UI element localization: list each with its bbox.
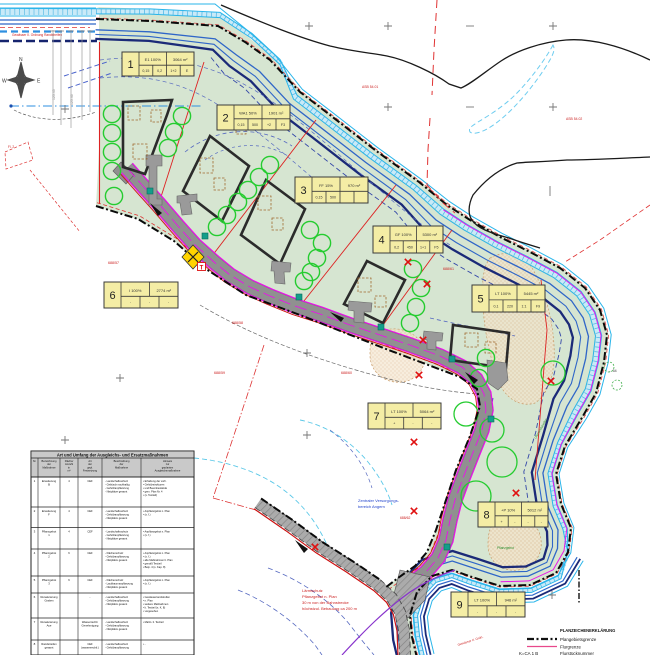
svg-text:1+2: 1+2 [170,69,176,73]
svg-text:30 m von der Bahnstrecke: 30 m von der Bahnstrecke [302,600,349,605]
svg-text:500: 500 [330,196,336,200]
svg-text:Genehmigung: Genehmigung [82,624,99,628]
svg-text:m²: m² [67,470,70,473]
svg-text:4: 4 [378,235,384,247]
svg-text:7: 7 [373,411,379,423]
svg-text:Pflanzgebot: Pflanzgebot [42,551,56,555]
svg-text:+2: +2 [267,123,271,127]
svg-text:• (s. f.): • (s. f.) [143,533,151,537]
svg-text:5445 m²: 5445 m² [524,291,539,296]
svg-text:N: N [19,57,23,63]
svg-text:450: 450 [407,245,413,249]
svg-text:- Landschaftsschutz: - Landschaftsschutz [105,642,129,646]
svg-text:688/58: 688/58 [232,321,243,325]
svg-text:LT 100%: LT 100% [391,409,407,414]
svg-text:CEF: CEF [87,551,93,555]
svg-text:- Landschaftsschutz: - Landschaftsschutz [105,479,129,483]
svg-text:- Gehölzanpflanzung: - Gehölzanpflanzung [105,599,129,603]
svg-text:Pflanzgebot: Pflanzgebot [42,530,56,534]
svg-text:- Gehölzanpflanzung: - Gehölzanpflanzung [105,533,129,537]
svg-text:Zentraler Versorgungs-: Zentraler Versorgungs- [358,498,400,503]
svg-text:CEF: CEF [87,530,93,534]
svg-text:0,2: 0,2 [394,245,399,249]
svg-text:• (s. f.): • (s. f.) [143,513,151,517]
svg-text:5: 5 [477,294,483,306]
svg-text:Pflanzgebot: Pflanzgebot [497,546,514,550]
svg-text:1: 1 [127,59,133,71]
svg-text:• Gewässerrandstreifen: • Gewässerrandstreifen [143,595,171,599]
svg-text:0,15: 0,15 [316,196,323,200]
svg-text:- Laubbaumanpflanzung: - Laubbaumanpflanzung [105,582,134,586]
svg-text:Erweiterung: Erweiterung [42,509,57,513]
svg-text:Pflanzgebot: Pflanzgebot [42,578,56,582]
svg-text:- Landschaftsschutz: - Landschaftsschutz [105,509,129,513]
svg-text:• Erhaltung der vorh.: • Erhaltung der vorh. [143,479,167,483]
svg-text:Nr.: Nr. [33,459,37,463]
svg-text:E1 100%: E1 100% [145,57,162,62]
svg-text:Maßnahme: Maßnahme [42,465,56,469]
svg-text:ASB 54.02: ASB 54.02 [566,117,582,121]
svg-text:T: T [200,266,204,272]
svg-text:• Maßn. lt. Textteil: • Maßn. lt. Textteil [143,620,164,624]
svg-text:0,15: 0,15 [142,69,149,73]
svg-text:• gemäß Textteil: • gemäß Textteil [143,562,162,566]
svg-text:1901 m²: 1901 m² [269,111,284,116]
svg-text:- Nistplätze gesamt: - Nistplätze gesamt [105,602,127,606]
svg-text:CEF: CEF [87,578,93,582]
svg-text:F9: F9 [536,304,540,308]
svg-text:höchstzul. Bebauung ca 200 m: höchstzul. Bebauung ca 200 m [302,606,358,611]
svg-text:- Nistplätze gesamt: - Nistplätze gesamt [105,627,127,631]
svg-text:GF 100%: GF 100% [395,232,412,237]
svg-text:- Gehölzanpflanzung: - Gehölzanpflanzung [105,646,129,650]
svg-text:+: + [501,520,503,524]
svg-text:688/59: 688/59 [214,371,225,375]
svg-text:- Nistplätze gesamt: - Nistplätze gesamt [105,516,127,520]
svg-text:688/60: 688/60 [341,371,352,375]
svg-text:- Nistplätze gesamt: - Nistplätze gesamt [105,537,127,541]
svg-text:123.40: 123.40 [70,94,74,105]
svg-text:1:1: 1:1 [522,304,527,308]
svg-text:F5: F5 [434,245,438,249]
svg-text:Maßnahme: Maßnahme [115,465,129,469]
svg-text:Renaturierung: Renaturierung [40,620,58,624]
svg-text:Erweiterung: Erweiterung [42,479,57,483]
svg-text:688/57: 688/57 [108,261,119,265]
svg-text:Fl. 2: Fl. 2 [8,145,14,149]
svg-text:- Nistplätze gesamt: - Nistplätze gesamt [105,558,127,562]
svg-text:CEF: CEF [87,642,93,646]
svg-text:Renaturierung: Renaturierung [40,595,58,599]
svg-text:3064 m²: 3064 m² [173,57,188,62]
svg-text:• Gehölzstrukturen: • Gehölzstrukturen [143,483,165,487]
svg-text:(wasserrechtl.): (wasserrechtl.) [81,646,99,650]
svg-text:8: 8 [483,510,489,522]
svg-text:Festsetzung: Festsetzung [83,469,98,473]
svg-text:688/62: 688/62 [400,516,410,520]
svg-text:F3: F3 [281,123,285,127]
svg-text:• n. Plan: • n. Plan [143,599,153,603]
svg-text:5300 m²: 5300 m² [422,232,437,237]
svg-text:Wasserrechtl.: Wasserrechtl. [82,620,99,624]
svg-text:• alle Maßnahmen lt. Plan: • alle Maßnahmen lt. Plan [143,558,173,562]
svg-text:946 m²: 946 m² [505,598,518,603]
svg-text:- Gebüsch nachhaltig: - Gebüsch nachhaltig [105,483,130,487]
svg-text:LT 100%: LT 100% [474,598,490,603]
svg-text:WA1 50%: WA1 50% [239,111,257,116]
svg-text:CEF: CEF [87,509,93,513]
svg-text:Graben: Graben [45,599,54,603]
svg-text:Randstreifen: Randstreifen [41,642,57,646]
svg-text:1+1: 1+1 [420,245,426,249]
svg-text:Lärmschutz: Lärmschutz [302,588,323,593]
svg-text:• Anpflanzgebot n. Plan: • Anpflanzgebot n. Plan [143,578,170,582]
svg-text:- Gehölzanpflanzung: - Gehölzanpflanzung [105,555,129,559]
svg-text:Gewässer II. Ordnung Randstrei: Gewässer II. Ordnung Randstreifen [12,33,62,37]
svg-text:+P 10%: +P 10% [501,508,515,513]
svg-text:Aue: Aue [47,624,52,628]
svg-text:- Flächenschutz: - Flächenschutz [105,578,124,582]
svg-text:6: 6 [109,290,115,302]
svg-text:- Nistplätze gesamt: - Nistplätze gesamt [105,490,127,494]
svg-text:-: - [90,596,91,599]
svg-text:• weitere Maßnahmen: • weitere Maßnahmen [143,602,169,606]
svg-text:• lt. Textteil (s. K. 8): • lt. Textteil (s. K. 8) [143,606,165,610]
svg-text:220: 220 [507,304,513,308]
svg-text:• vorgesehen: • vorgesehen [143,609,159,613]
svg-text:Ausgleichsmaßnahme: Ausgleichsmaßnahme [155,469,181,473]
svg-text:K=CA 1 B: K=CA 1 B [519,651,538,655]
svg-text:Pflanzgebot n. Plan: Pflanzgebot n. Plan [302,594,337,599]
svg-text:CEF: CEF [87,479,93,483]
svg-text:B: B [48,483,50,487]
svg-text:W: W [2,79,7,85]
svg-text:- Nistplätze gesamt: - Nistplätze gesamt [105,585,127,589]
svg-text:- Gehölzanpflanzung: - Gehölzanpflanzung [105,486,129,490]
svg-text:Flurgrenze: Flurgrenze [560,645,582,650]
svg-text:- Gehölzanpflanzung: - Gehölzanpflanzung [105,624,129,628]
svg-text:970 m²: 970 m² [348,183,361,188]
svg-text:bereich Angern: bereich Angern [358,504,385,509]
svg-text:9: 9 [456,600,462,612]
svg-text:• Beip. 4 (s. Kap. 8): • Beip. 4 (s. Kap. 8) [143,565,166,569]
svg-text:I 100%: I 100% [129,288,142,293]
svg-text:123.45: 123.45 [52,89,56,100]
svg-text:LT 100%: LT 100% [495,291,511,296]
svg-text:- Gehölzanpflanzung: - Gehölzanpflanzung [105,513,129,517]
svg-text:• Anpflanzgebot n. Plan: • Anpflanzgebot n. Plan [143,530,170,534]
svg-text:0,1: 0,1 [494,304,499,308]
svg-text:• (s. f.): • (s. f.) [143,555,151,559]
svg-text:- Flächenschutz: - Flächenschutz [105,551,124,555]
svg-text:• -: • - [143,643,146,646]
svg-text:5012 m²: 5012 m² [527,508,542,513]
svg-text:• (s. Textteil): • (s. Textteil) [143,493,157,497]
svg-text:Plangebietsgrenze: Plangebietsgrenze [560,637,597,642]
svg-text:500: 500 [252,123,258,127]
svg-text:gesamt: gesamt [45,646,54,650]
svg-text:FF 15%: FF 15% [319,183,333,188]
svg-text:PLANZEICHENERKLÄRUNG: PLANZEICHENERKLÄRUNG [560,628,615,633]
svg-text:Flurstücknummer: Flurstücknummer [560,651,594,655]
svg-text:2: 2 [222,113,228,125]
svg-text:688/61: 688/61 [443,267,454,271]
svg-text:0,15: 0,15 [238,123,245,127]
svg-text:- Landschaftsschutz: - Landschaftsschutz [105,530,129,534]
svg-text:• gem. Plan Nr. 4: • gem. Plan Nr. 4 [143,490,163,494]
svg-text:3: 3 [300,185,306,197]
svg-text:- Landschaftsschutz: - Landschaftsschutz [105,595,129,599]
svg-text:• (s. f.): • (s. f.) [143,582,151,586]
svg-text:ASB 54.01: ASB 54.01 [362,85,378,89]
svg-text:0,2: 0,2 [157,69,162,73]
svg-text:• Anpflanzgebot n. Plan: • Anpflanzgebot n. Plan [143,551,170,555]
svg-text:Art und Umfang der Ausgleichs-: Art und Umfang der Ausgleichs- und Ersat… [57,452,169,457]
svg-text:+: + [393,422,395,426]
svg-text:- Landschaftsschutz: - Landschaftsschutz [105,620,129,624]
svg-text:• und Baumbestände: • und Baumbestände [143,486,168,490]
svg-text:5064 m²: 5064 m² [420,409,435,414]
svg-text:• Anpflanzgebot n. Plan: • Anpflanzgebot n. Plan [143,509,170,513]
svg-text:2774 m²: 2774 m² [156,288,171,293]
